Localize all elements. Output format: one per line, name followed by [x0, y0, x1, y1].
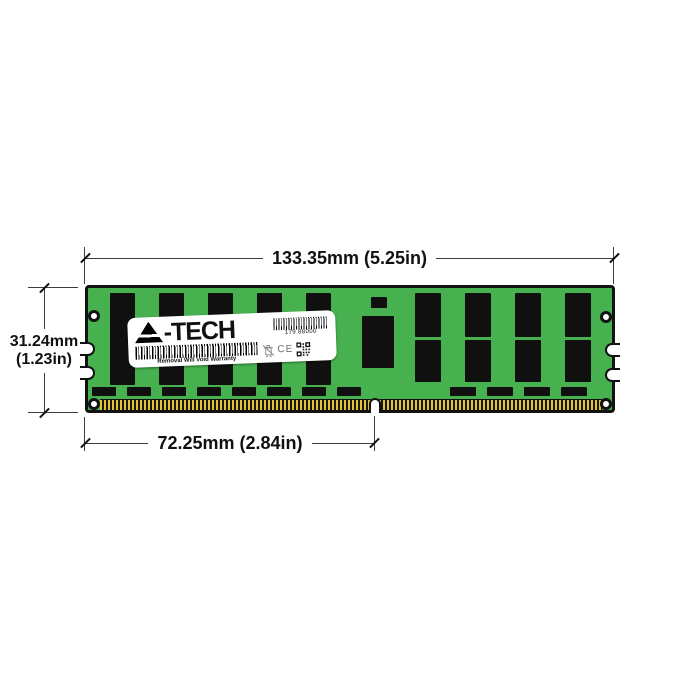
dimension-line: [44, 373, 45, 414]
memory-chip: [465, 293, 491, 337]
height-dimension-mm: 31.24mm: [10, 333, 79, 351]
pin-width-dimension: 72.25mm (2.84in): [85, 432, 375, 454]
smd-chip: [197, 387, 221, 396]
smd-chip: [267, 387, 291, 396]
gold-pins-right: [379, 399, 602, 410]
smd-chip: [450, 387, 476, 396]
height-dimension-label: 31.24mm (1.23in): [10, 329, 79, 373]
dimension-line: [44, 288, 45, 329]
mounting-hole: [88, 310, 100, 322]
height-dimension: 31.24mm (1.23in): [4, 288, 84, 413]
dimension-line: [436, 258, 614, 259]
edge-notch: [605, 368, 620, 382]
a-tech-triangle-icon: A: [134, 321, 163, 343]
mounting-hole: [600, 398, 612, 410]
memory-chip: [565, 340, 591, 382]
qr-code-icon: [296, 342, 311, 357]
dimension-line: [312, 443, 375, 444]
ram-module: A -TECH 179 88000 Removal Will Void Warr…: [85, 285, 615, 413]
memory-chip: [565, 293, 591, 337]
smd-chip: [232, 387, 256, 396]
memory-chip: [515, 340, 541, 382]
a-tech-logo: A -TECH: [134, 317, 273, 344]
gold-pins-left: [100, 399, 371, 410]
smd-chip: [92, 387, 116, 396]
edge-notch: [80, 366, 95, 380]
memory-chip: [415, 340, 441, 382]
memory-module-dimension-diagram: 133.35mm (5.25in) 31.24mm (1.23in) 72.25…: [0, 0, 700, 700]
ce-mark: CE: [277, 345, 293, 356]
smd-chip: [162, 387, 186, 396]
warranty-block: Removal Will Void Warranty: [135, 342, 258, 367]
dimension-line: [85, 443, 148, 444]
memory-chip: [415, 293, 441, 337]
register-chip: [362, 316, 394, 368]
width-dimension-label: 133.35mm (5.25in): [263, 248, 436, 269]
mounting-hole: [88, 398, 100, 410]
product-label: A -TECH 179 88000 Removal Will Void Warr…: [127, 310, 337, 368]
smd-chip: [524, 387, 550, 396]
dimension-line: [85, 258, 263, 259]
serial-block: 179 88000: [272, 316, 329, 337]
memory-chip: [465, 340, 491, 382]
width-dimension: 133.35mm (5.25in): [85, 247, 614, 269]
edge-notch: [80, 342, 95, 356]
edge-notch: [605, 343, 620, 357]
smd-chip: [487, 387, 513, 396]
smd-chip: [561, 387, 587, 396]
smd-chip: [127, 387, 151, 396]
height-dimension-in: (1.23in): [10, 351, 79, 369]
mounting-hole: [600, 311, 612, 323]
brand-text: -TECH: [163, 318, 235, 343]
smd-chip: [302, 387, 326, 396]
key-notch: [369, 398, 381, 413]
certification-icons: CE: [262, 342, 310, 358]
small-component-chip: [371, 297, 387, 308]
pin-width-dimension-label: 72.25mm (2.84in): [148, 433, 311, 454]
serial-number: 179 88000: [273, 328, 329, 337]
weee-bin-icon: [262, 343, 275, 357]
memory-chip: [515, 293, 541, 337]
smd-chip: [337, 387, 361, 396]
